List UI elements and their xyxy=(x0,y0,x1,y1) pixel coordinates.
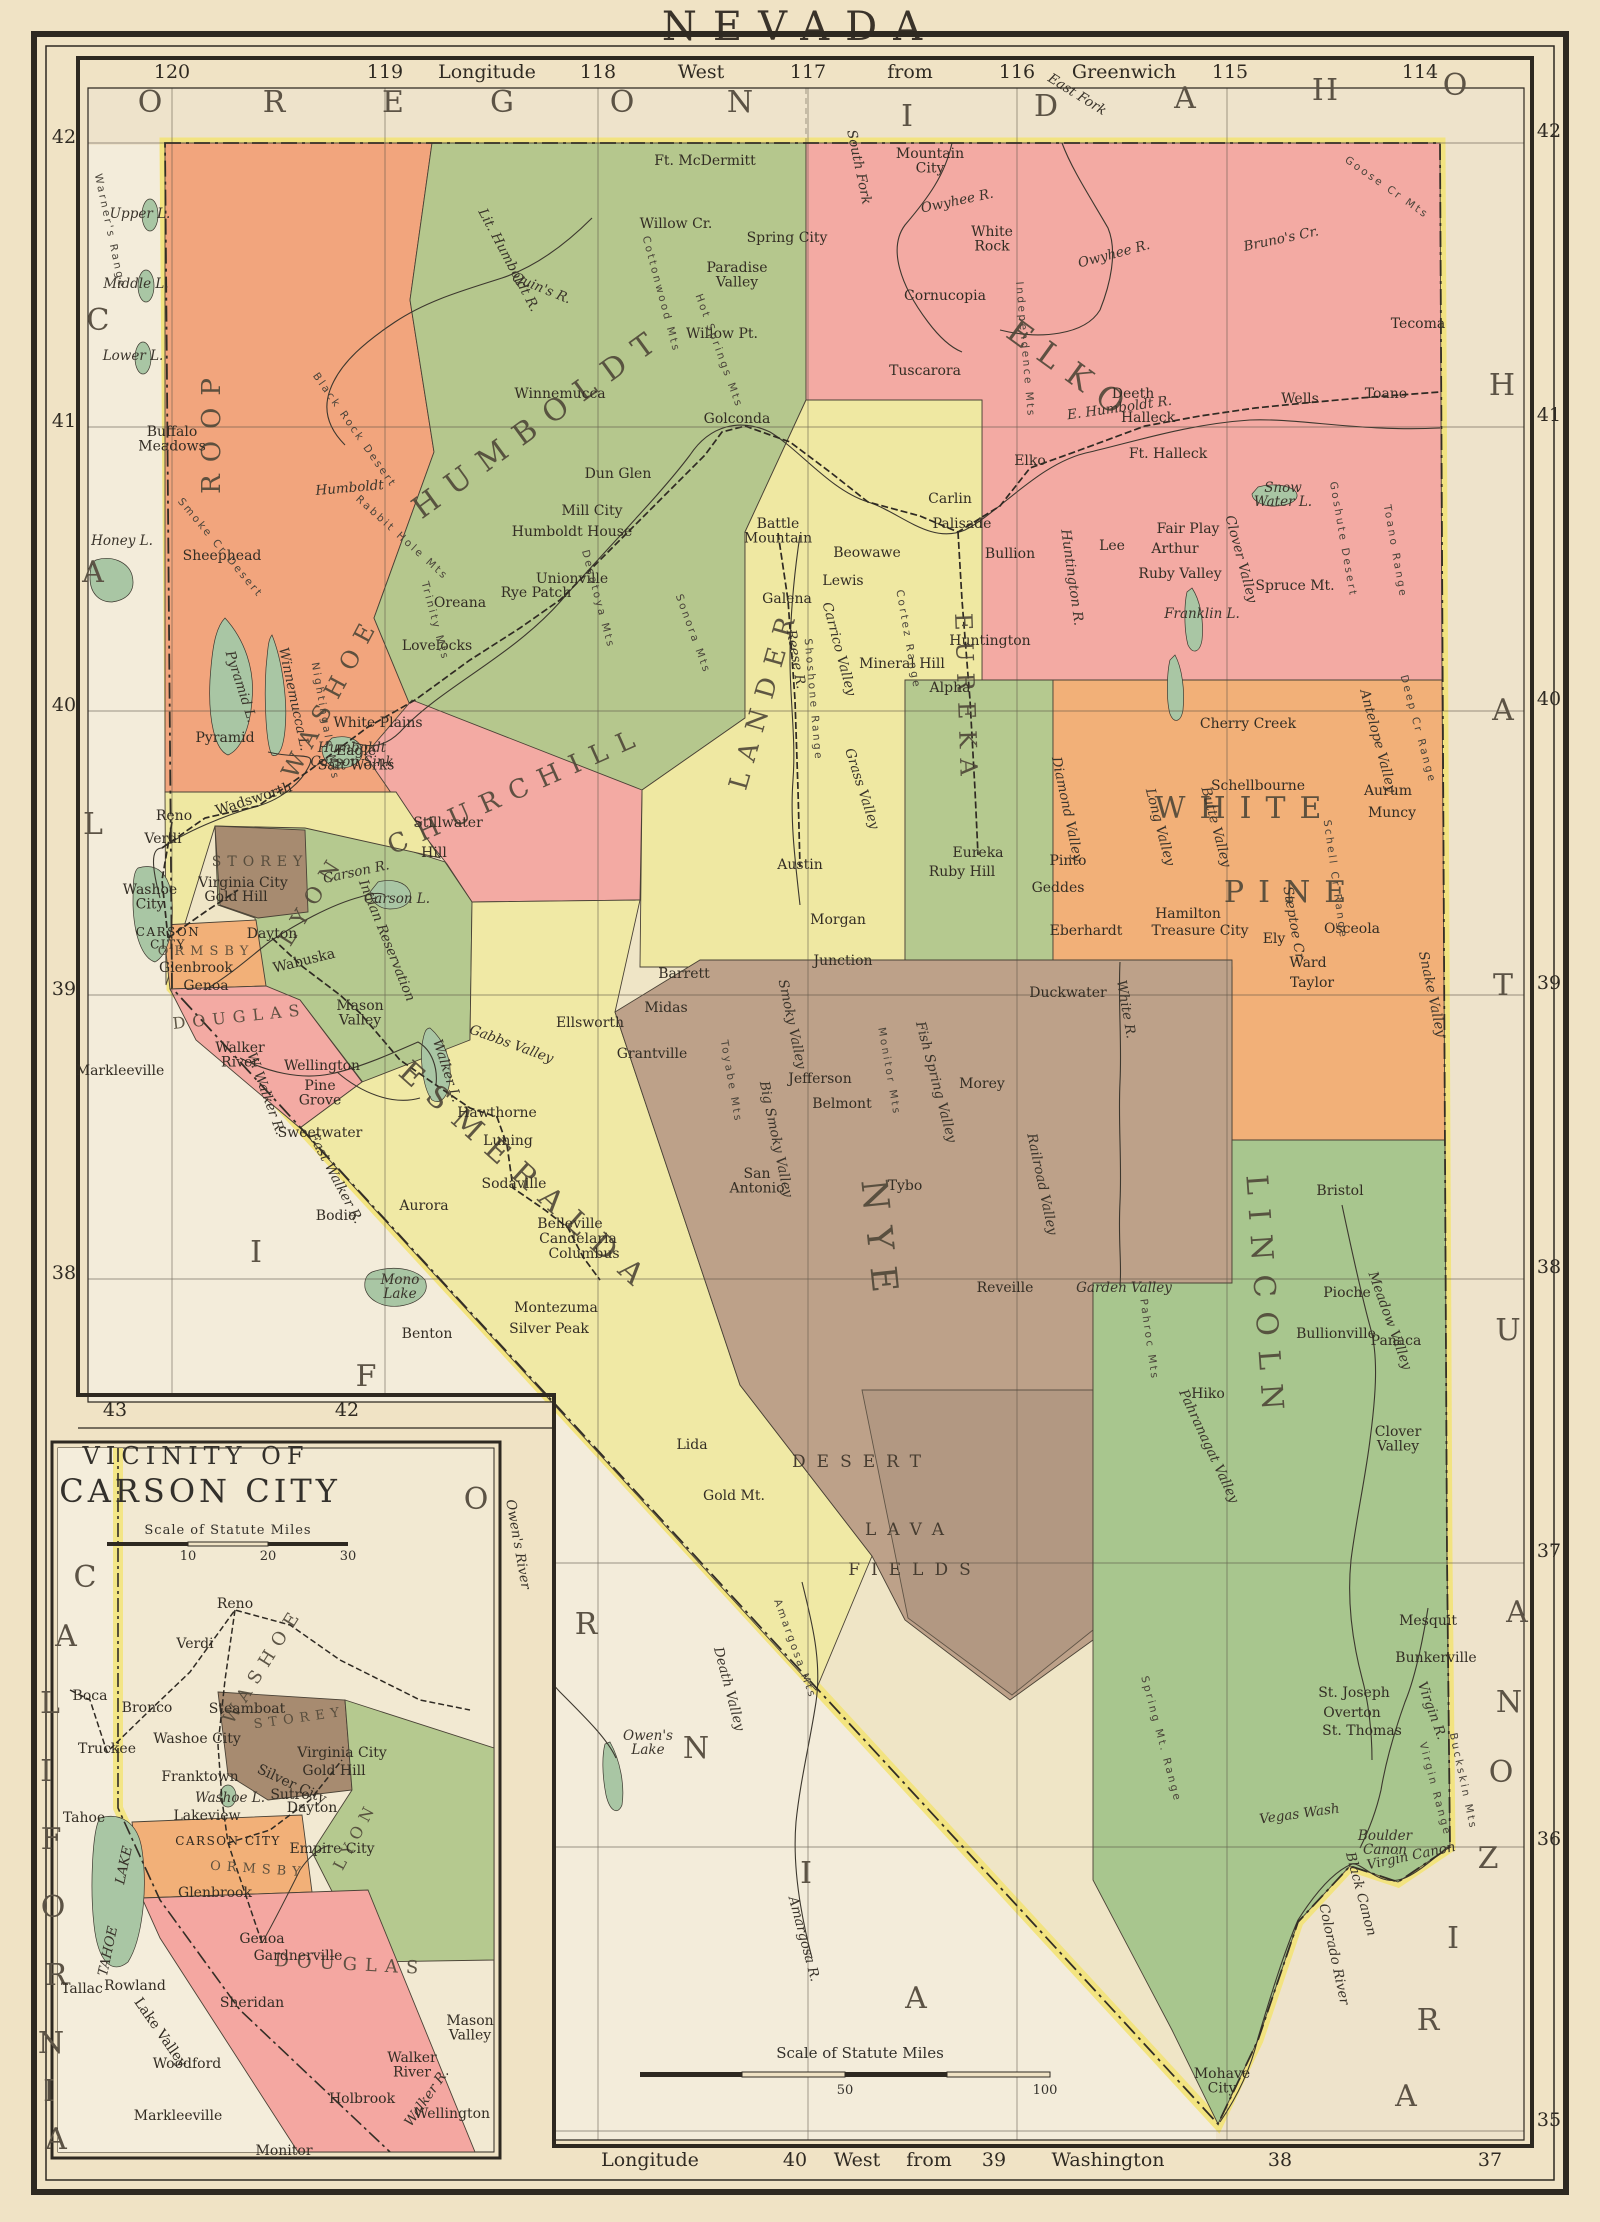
label-40: 40 xyxy=(1537,688,1561,710)
label-ellsworth: Ellsworth xyxy=(556,1015,624,1031)
label-e: E xyxy=(382,85,404,120)
label-o: O xyxy=(464,1482,489,1517)
label-lee: Lee xyxy=(1099,538,1125,554)
label-boca: Boca xyxy=(73,1688,108,1704)
label-barrett: Barrett xyxy=(658,966,710,982)
label-lower-l: Lower L. xyxy=(102,348,164,364)
label-120: 120 xyxy=(154,61,190,83)
label-dayton: Dayton xyxy=(287,1800,338,1816)
label-h: H xyxy=(1489,368,1515,403)
label-scale-of-statute-miles: Scale of Statute Miles xyxy=(144,1523,311,1538)
label-walker: WalkerRiver xyxy=(387,2050,437,2081)
label-spruce-mt: Spruce Mt. xyxy=(1255,578,1334,594)
label-roop: ROOP xyxy=(197,366,227,494)
label-grantville: Grantville xyxy=(617,1046,688,1062)
label-geddes: Geddes xyxy=(1032,880,1085,896)
label-desert: DESERT xyxy=(792,1452,932,1472)
label-reveille: Reveille xyxy=(977,1280,1034,1296)
label-a: A xyxy=(1173,81,1196,116)
label-lava: LAVA xyxy=(865,1520,955,1540)
label-115: 115 xyxy=(1212,61,1248,83)
label-eberhardt: Eberhardt xyxy=(1050,923,1123,939)
label-hawthorne: Hawthorne xyxy=(457,1105,537,1121)
label-scale-of-statute-miles: Scale of Statute Miles xyxy=(776,2044,944,2062)
label-gold-mt: Gold Mt. xyxy=(703,1488,765,1504)
label-junction: Junction xyxy=(811,953,872,969)
label-d: D xyxy=(1034,89,1058,124)
label-montezuma: Montezuma xyxy=(514,1300,598,1316)
label-100: 100 xyxy=(1033,2083,1058,2098)
label-a: A xyxy=(1394,2079,1417,2114)
label-l: L xyxy=(40,1686,60,1721)
label-white-plains: White Plains xyxy=(333,715,422,731)
label-r: R xyxy=(575,1607,599,1642)
label-bullion: Bullion xyxy=(985,546,1035,562)
label-pine: PineGrove xyxy=(299,1078,342,1109)
label-30: 30 xyxy=(340,1549,357,1564)
label-oreana: Oreana xyxy=(434,595,486,611)
label-lewis: Lewis xyxy=(822,573,863,589)
label-franktown: Franktown xyxy=(161,1769,238,1785)
label-39: 39 xyxy=(1537,972,1561,994)
label-west: West xyxy=(678,61,725,83)
label-silver-peak: Silver Peak xyxy=(509,1321,589,1337)
label-117: 117 xyxy=(790,61,826,83)
label-a: A xyxy=(904,1981,927,2016)
scale-bar-inset xyxy=(107,1542,348,1546)
label-markleeville: Markleeville xyxy=(134,2108,223,2124)
label-benton: Benton xyxy=(402,1326,453,1342)
label-43: 43 xyxy=(103,1399,127,1421)
label-austin: Austin xyxy=(776,857,822,873)
label-o: O xyxy=(138,85,163,120)
label-gardnerville: Gardnerville xyxy=(254,1948,343,1964)
label-37: 37 xyxy=(1537,1540,1561,1562)
scale-bar-main xyxy=(640,2072,1050,2077)
label-arthur: Arthur xyxy=(1150,541,1198,557)
label-markleeville: Markleeville xyxy=(76,1063,165,1079)
label-42: 42 xyxy=(1537,120,1561,142)
label-verdi: Verdi xyxy=(143,831,182,847)
map-page: NEVADA xyxy=(0,0,1600,2222)
label-41: 41 xyxy=(1537,404,1561,426)
label-40: 40 xyxy=(52,694,76,716)
label-spring-city: Spring City xyxy=(747,230,828,246)
label-beowawe: Beowawe xyxy=(833,545,901,561)
label-upper-l: Upper L. xyxy=(110,206,171,222)
label-pioche: Pioche xyxy=(1323,1285,1370,1301)
label-empire-city: Empire City xyxy=(289,1841,374,1857)
label-vicinity-of: VICINITY OF xyxy=(82,1442,310,1470)
label-cornucopia: Cornucopia xyxy=(904,288,986,304)
label-elko: Elko xyxy=(1014,453,1046,469)
label-bunkerville: Bunkerville xyxy=(1395,1650,1476,1666)
label-mason: MasonValley xyxy=(446,2013,493,2044)
label-gold-hill: Gold Hill xyxy=(302,1763,366,1779)
label-washoe-city: Washoe City xyxy=(153,1731,241,1747)
label-c: C xyxy=(74,1560,97,1595)
label-longitude: Longitude xyxy=(438,61,536,83)
label-tahoe: Tahoe xyxy=(63,1810,105,1826)
label-verdi: Verdi xyxy=(175,1636,214,1652)
label-st-joseph: St. Joseph xyxy=(1318,1685,1390,1701)
label-10: 10 xyxy=(180,1549,197,1564)
label-fields: FIELDS xyxy=(848,1560,982,1580)
label-truckee: Truckee xyxy=(78,1741,136,1757)
label-huntington: Huntington xyxy=(949,633,1030,649)
label-belleville: Belleville xyxy=(537,1216,602,1232)
label-bullionville: Bullionville xyxy=(1296,1326,1376,1342)
label-steamboat: Steamboat xyxy=(209,1701,286,1717)
label-t: T xyxy=(1493,968,1513,1003)
label-washoe-l: Washoe L. xyxy=(195,1790,265,1806)
label-tallac: Tallac xyxy=(61,1981,103,1997)
label-jefferson: Jefferson xyxy=(786,1071,851,1087)
label-ruby-hill: Ruby Hill xyxy=(929,864,996,880)
label-38: 38 xyxy=(52,1262,76,1284)
label-o: O xyxy=(1443,68,1468,103)
label-sheridan: Sheridan xyxy=(220,1995,284,2011)
label-a: A xyxy=(44,2122,67,2157)
label-hamilton: Hamilton xyxy=(1155,906,1221,922)
label-35: 35 xyxy=(1537,2109,1561,2131)
label-lida: Lida xyxy=(676,1437,707,1453)
label-honey-l: Honey L. xyxy=(90,533,153,549)
label-119: 119 xyxy=(367,61,403,83)
label-bronco: Bronco xyxy=(122,1700,173,1716)
label-cherry-creek: Cherry Creek xyxy=(1200,716,1297,732)
label-ruby-valley: Ruby Valley xyxy=(1138,566,1221,582)
label-franklin-l: Franklin L. xyxy=(1163,606,1240,622)
label-genoa: Genoa xyxy=(183,978,228,994)
label-o: O xyxy=(610,85,635,120)
label-west: West xyxy=(834,2149,881,2171)
label-mesquit: Mesquit xyxy=(1399,1613,1457,1629)
label-41: 41 xyxy=(52,410,76,432)
label-columbus: Columbus xyxy=(548,1246,619,1262)
label-ft-halleck: Ft. Halleck xyxy=(1129,446,1208,462)
label-reno: Reno xyxy=(217,1596,253,1612)
label-39: 39 xyxy=(52,978,76,1000)
label-r: R xyxy=(263,85,287,120)
label-alpha: Alpha xyxy=(929,680,971,696)
label-o: O xyxy=(41,1890,66,1925)
label-i: I xyxy=(40,1754,52,1789)
label-n: N xyxy=(727,85,753,120)
label-n: N xyxy=(38,2026,64,2061)
label-u: U xyxy=(1495,1313,1520,1348)
nevada-map: OREGONIDAHOHATUANOZIRACALIFORNIACALIFORN… xyxy=(0,0,1600,2222)
label-storey: STOREY xyxy=(212,854,308,870)
label-dayton: Dayton xyxy=(247,926,298,942)
label-i: I xyxy=(250,1235,262,1270)
label-greenwich: Greenwich xyxy=(1072,61,1176,83)
label-from: from xyxy=(887,61,933,83)
label-genoa: Genoa xyxy=(239,1931,284,1947)
label-golconda: Golconda xyxy=(704,411,771,427)
label-humboldt-house: Humboldt House xyxy=(512,524,633,540)
label-c: C xyxy=(87,303,110,338)
label-42: 42 xyxy=(52,126,76,148)
label-clover: CloverValley xyxy=(1375,1424,1422,1455)
label-belmont: Belmont xyxy=(812,1096,872,1112)
label-mill-city: Mill City xyxy=(562,503,623,519)
label-osceola: Osceola xyxy=(1324,921,1380,937)
label-from: from xyxy=(906,2149,952,2171)
label-duckwater: Duckwater xyxy=(1029,985,1107,1001)
label-virginia-city: Virginia City xyxy=(296,1745,387,1761)
label-willow-cr: Willow Cr. xyxy=(640,216,713,232)
label-buffalo: BuffaloMeadows xyxy=(138,424,206,455)
label-a: A xyxy=(81,555,104,590)
label-f: F xyxy=(41,1822,62,1857)
label-38: 38 xyxy=(1268,2149,1292,2171)
label-lakeview: Lakeview xyxy=(173,1808,240,1824)
label-carson-city: CARSON CITY xyxy=(59,1472,341,1510)
label-woodford: Woodford xyxy=(153,2056,222,2072)
label-118: 118 xyxy=(580,61,616,83)
label-l: L xyxy=(83,807,103,842)
label-mineral-hill: Mineral Hill xyxy=(859,656,945,672)
label-n: N xyxy=(683,1731,709,1766)
label-fair-play: Fair Play xyxy=(1157,521,1220,537)
label-50: 50 xyxy=(837,2083,854,2098)
label-winnemucca: Winnemucca xyxy=(514,386,605,402)
label-muncy: Muncy xyxy=(1368,805,1416,821)
label-40: 40 xyxy=(783,2149,807,2171)
label-toano: Toano xyxy=(1365,386,1407,402)
label-37: 37 xyxy=(1478,2149,1502,2171)
label-overton: Overton xyxy=(1323,1705,1380,1721)
label-a: A xyxy=(1505,1595,1528,1630)
label-longitude: Longitude xyxy=(601,2149,699,2171)
label-middle-l: Middle L. xyxy=(102,276,168,292)
label-treasure-city: Treasure City xyxy=(1151,923,1248,939)
label-galena: Galena xyxy=(762,591,812,607)
label-h: H xyxy=(1312,73,1338,108)
label-morgan: Morgan xyxy=(810,912,866,928)
label-g: G xyxy=(490,85,514,120)
label-r: R xyxy=(1417,2003,1441,2038)
label-monitor: Monitor xyxy=(255,2143,312,2159)
label-white: WhiteRock xyxy=(971,224,1013,255)
label-i: I xyxy=(901,99,913,134)
label-dun-glen: Dun Glen xyxy=(585,466,652,482)
label-morey: Morey xyxy=(959,1076,1005,1092)
label-aurora: Aurora xyxy=(398,1198,448,1214)
label-palisade: Palisade xyxy=(933,516,992,532)
label-candelaria: Candelaria xyxy=(539,1231,617,1247)
label-rye-patch: Rye Patch xyxy=(501,585,572,601)
label-glenbrook: Glenbrook xyxy=(159,960,233,976)
label-o: O xyxy=(1489,1755,1514,1790)
label-tybo: Tybo xyxy=(888,1178,923,1194)
label-20: 20 xyxy=(260,1549,277,1564)
label-ely: Ely xyxy=(1263,931,1286,947)
label-st-thomas: St. Thomas xyxy=(1322,1723,1402,1739)
label-i: I xyxy=(1447,1921,1459,1956)
label-116: 116 xyxy=(999,61,1035,83)
label-hill: Hill xyxy=(421,845,447,861)
label-pyramid: Pyramid xyxy=(195,730,254,746)
label-wells: Wells xyxy=(1281,391,1319,407)
label-carson-city: CARSON CITY xyxy=(175,1834,281,1848)
label-n: N xyxy=(1496,1685,1522,1720)
label-humboldt: HumboldtCarson Sink xyxy=(310,740,393,770)
label-sodaville: Sodaville xyxy=(482,1176,547,1192)
label-a: A xyxy=(1491,693,1514,728)
label-glenbrook: Glenbrook xyxy=(178,1885,252,1901)
label-39: 39 xyxy=(982,2149,1006,2171)
label-z: Z xyxy=(1478,1841,1499,1876)
label-luning: Luning xyxy=(483,1133,533,1149)
label-wellington: Wellington xyxy=(284,1058,360,1074)
label-bristol: Bristol xyxy=(1316,1183,1364,1199)
label-f: F xyxy=(356,1359,377,1394)
label-mono: MonoLake xyxy=(380,1272,420,1302)
label-mason: MasonValley xyxy=(336,998,383,1029)
label-schellbourne: Schellbourne xyxy=(1211,778,1305,794)
label-taylor: Taylor xyxy=(1290,975,1334,991)
label-reno: Reno xyxy=(156,808,192,824)
label-stillwater: Stillwater xyxy=(413,815,483,831)
label-midas: Midas xyxy=(644,1000,687,1016)
label-42: 42 xyxy=(335,1399,359,1421)
label-114: 114 xyxy=(1402,61,1438,83)
label-eureka: Eureka xyxy=(952,845,1003,861)
label-36: 36 xyxy=(1537,1828,1561,1850)
label-carlin: Carlin xyxy=(928,491,972,507)
label-ft-mcdermitt: Ft. McDermitt xyxy=(654,153,756,169)
label-gold-hill: Gold Hill xyxy=(204,889,268,905)
label-tecoma: Tecoma xyxy=(1391,316,1445,332)
label-garden-valley: Garden Valley xyxy=(1076,1280,1172,1296)
label-holbrook: Holbrook xyxy=(329,2091,396,2107)
label-washington: Washington xyxy=(1052,2149,1165,2171)
label-a: A xyxy=(54,1619,77,1654)
label-38: 38 xyxy=(1537,1256,1561,1278)
label-rowland: Rowland xyxy=(104,1978,166,1994)
label-owen-s-river: Owen's River xyxy=(502,1498,534,1592)
label-i: I xyxy=(800,1856,812,1891)
label-tuscarora: Tuscarora xyxy=(889,363,961,379)
label-i: I xyxy=(43,2074,55,2109)
label-white: WHITE xyxy=(1155,791,1336,826)
